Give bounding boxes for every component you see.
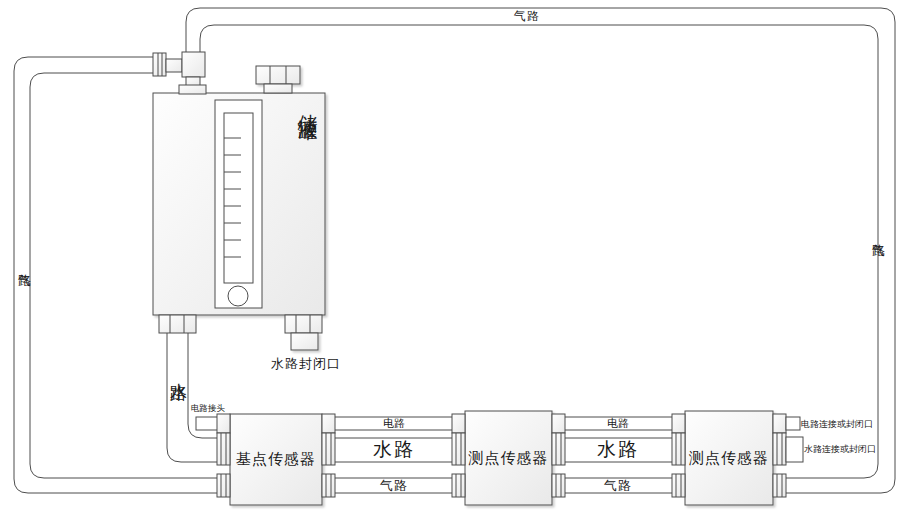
sensor3-left-ports (672, 414, 685, 497)
segment2-circuit-label: 电路 (607, 416, 629, 430)
tank-water-closed-port-fitting (285, 315, 322, 350)
sensor1-left-ports (196, 414, 230, 497)
tank-label: 储液罐 (295, 98, 322, 110)
gas-top-label: 气路 (514, 8, 540, 25)
tank-inlet-tee-fitting (153, 52, 206, 94)
sensor3-label: 测点传感器 (685, 411, 773, 505)
water-pipe-down-left-edge (167, 333, 219, 462)
segment2-water-label: 水路 (597, 438, 639, 462)
water-closed-port-label: 水路封闭口 (271, 355, 341, 373)
sight-glass-float (228, 286, 248, 306)
segment1-gas-label: 气路 (380, 478, 408, 493)
gas-left-label: 气路 (15, 263, 33, 265)
circuit-connector-label: 电路接头 (191, 403, 225, 415)
sensor3-right-ports (773, 414, 803, 497)
diagram-canvas: 气路 气路 气路 储液罐 水路 水路封闭口 电路接头 基点传感器 测点传感器 测… (0, 0, 903, 513)
sensor2-right-ports (552, 414, 565, 497)
sensor2-label: 测点传感器 (465, 411, 552, 505)
sensor1-right-ports (322, 414, 335, 497)
water-down-label: 水路 (167, 369, 190, 373)
circuit-connect-or-closed-label: 电路连接或封闭口 (801, 418, 873, 431)
sensor2-left-ports (452, 414, 465, 497)
tank-fill-cap (256, 66, 300, 93)
gas-right-label: 气路 (869, 233, 887, 235)
segment1-circuit-label: 电路 (383, 416, 405, 430)
tank-water-outlet-fitting (159, 315, 196, 333)
segment1-water-label: 水路 (373, 438, 415, 462)
segment2-gas-label: 气路 (604, 478, 632, 493)
water-connect-or-closed-label: 水路连接或封闭口 (804, 443, 876, 456)
sensor1-label: 基点传感器 (230, 414, 322, 505)
